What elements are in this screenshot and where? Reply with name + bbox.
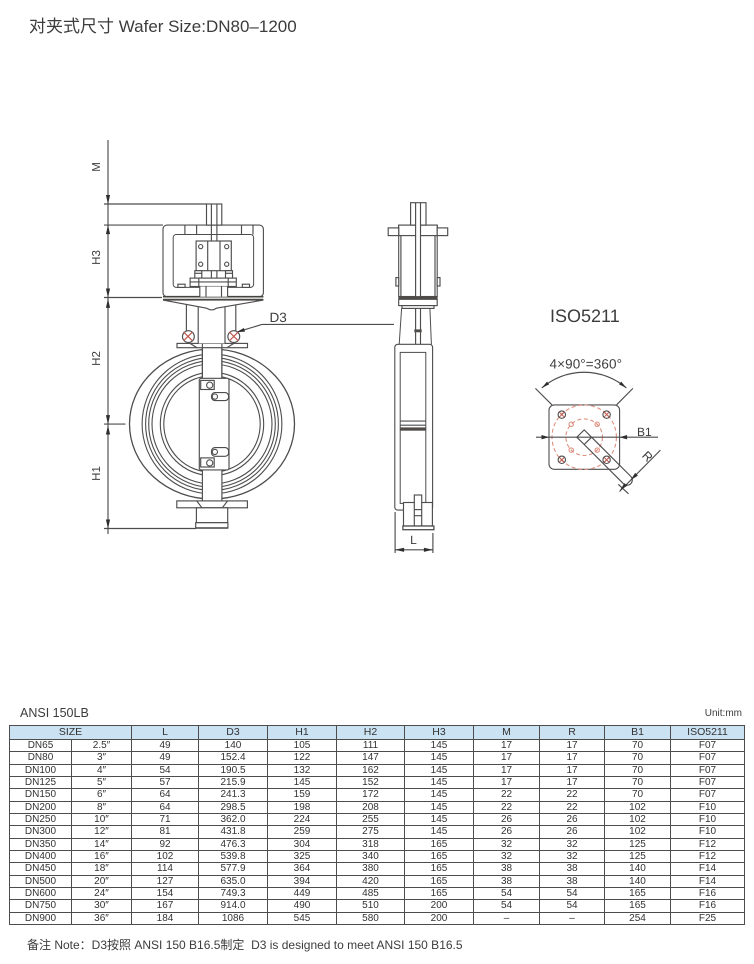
svg-text:ISO5211: ISO5211 bbox=[550, 306, 620, 326]
svg-text:D3: D3 bbox=[270, 310, 287, 325]
svg-text:4×90°=360°: 4×90°=360° bbox=[550, 357, 623, 372]
svg-text:H1: H1 bbox=[91, 466, 103, 481]
svg-text:R: R bbox=[639, 449, 655, 465]
svg-text:H2: H2 bbox=[91, 351, 103, 366]
svg-text:L: L bbox=[410, 533, 417, 547]
svg-text:H3: H3 bbox=[91, 250, 103, 265]
svg-text:M: M bbox=[91, 162, 103, 172]
svg-text:B1: B1 bbox=[637, 425, 652, 439]
